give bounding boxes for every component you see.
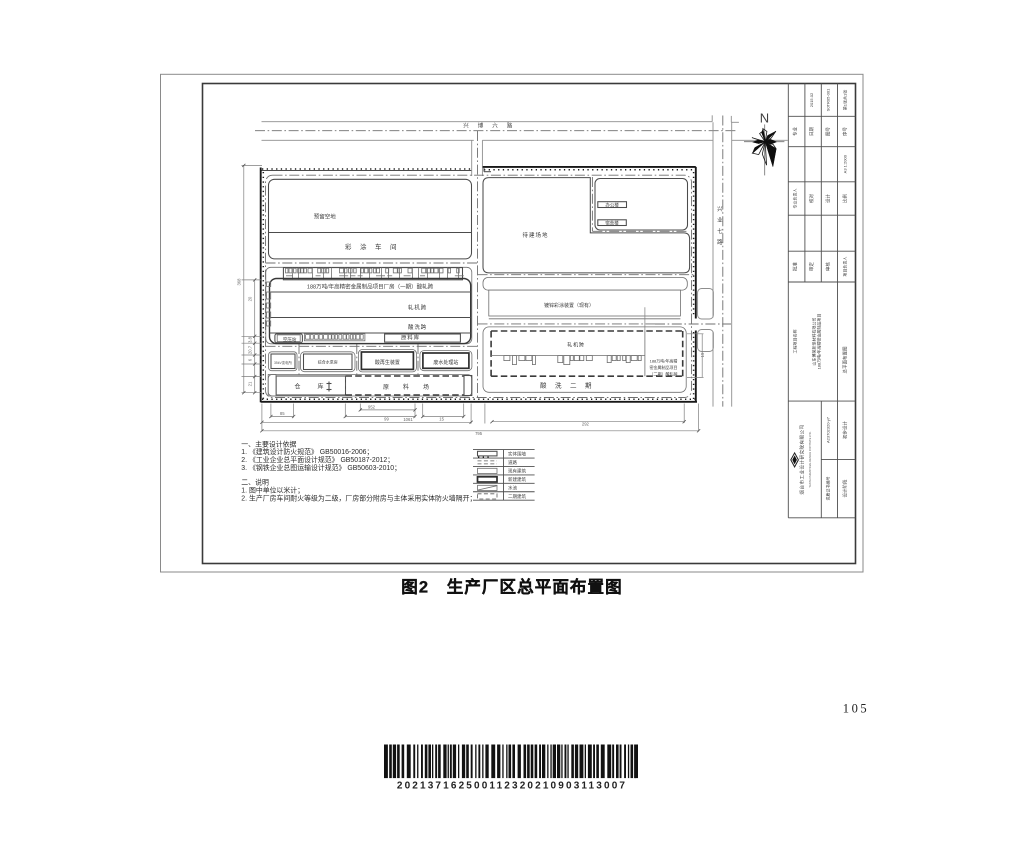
svg-text:业: 业 <box>717 216 723 224</box>
svg-text:废水处理站: 废水处理站 <box>433 359 458 366</box>
svg-text:99: 99 <box>384 417 389 422</box>
svg-text:山东博莱新型材料有限公司: 山东博莱新型材料有限公司 <box>810 318 816 366</box>
svg-text:188万吨/年高精密金属制品项目厂房（一期）酸轧跨: 188万吨/年高精密金属制品项目厂房（一期）酸轧跨 <box>307 282 434 290</box>
svg-text:YANTAI INDUSTRIAL DESIGN IN: YANTAI INDUSTRIAL DESIGN INSTITUTE LTD. <box>808 431 812 487</box>
svg-text:综合水泵房: 综合水泵房 <box>318 359 338 365</box>
svg-text:第1张共1张: 第1张共1张 <box>842 90 848 110</box>
svg-text:292: 292 <box>582 422 590 427</box>
svg-text:兴: 兴 <box>717 205 723 213</box>
svg-text:实体围墙: 实体围墙 <box>508 451 526 458</box>
svg-text:1. 图中单位以米计；: 1. 图中单位以米计； <box>241 486 304 495</box>
svg-text:密金属制品项目: 密金属制品项目 <box>650 364 678 370</box>
svg-text:N: N <box>760 111 769 126</box>
svg-text:1. 《建筑设计防火规范》 GB50016-2006；: 1. 《建筑设计防火规范》 GB50016-2006； <box>241 447 373 456</box>
svg-text:3. 《钢铁企业总图运输设计规范》 GB50603-2010: 3. 《钢铁企业总图运输设计规范》 GB50603-2010； <box>241 463 401 472</box>
svg-text:952: 952 <box>368 405 376 410</box>
svg-text:兴博六路: 兴博六路 <box>463 121 521 129</box>
svg-text:15: 15 <box>700 352 705 357</box>
svg-text:道路: 道路 <box>508 459 517 466</box>
svg-text:比例: 比例 <box>842 194 849 203</box>
svg-text:图2 生产厂区总平面布置图: 图2 生产厂区总平面布置图 <box>401 577 622 597</box>
svg-text:工程项目名称: 工程项目名称 <box>792 330 798 354</box>
svg-text:批准: 批准 <box>792 262 799 271</box>
svg-text:二、说明: 二、说明 <box>241 477 269 486</box>
svg-text:酸再生装置: 酸再生装置 <box>375 359 400 366</box>
svg-text:审核: 审核 <box>824 262 831 271</box>
svg-text:初步设计: 初步设计 <box>842 421 849 439</box>
svg-text:办公楼: 办公楼 <box>605 202 619 209</box>
svg-text:20.7: 20.7 <box>248 345 253 354</box>
svg-text:368: 368 <box>237 278 242 286</box>
svg-text:专业: 专业 <box>792 127 799 136</box>
svg-text:188万吨/年高精密金属制品项目: 188万吨/年高精密金属制品项目 <box>816 314 822 370</box>
svg-text:15: 15 <box>439 417 444 422</box>
svg-text:彩涂车间: 彩涂车间 <box>345 242 405 251</box>
svg-text:20: 20 <box>248 296 253 301</box>
svg-text:35kV变电所: 35kV变电所 <box>274 360 293 365</box>
svg-text:设计: 设计 <box>824 194 831 203</box>
svg-text:专业负责人: 专业负责人 <box>792 189 798 209</box>
svg-text:一、主要设计依据: 一、主要设计依据 <box>241 440 296 449</box>
svg-text:1061: 1061 <box>403 417 413 422</box>
svg-text:空压站: 空压站 <box>283 336 297 343</box>
svg-text:A3 1:2000: A3 1:2000 <box>843 154 848 173</box>
svg-text:审定: 审定 <box>808 262 815 271</box>
svg-text:路: 路 <box>717 238 723 246</box>
svg-text:轧机跨: 轧机跨 <box>567 341 584 348</box>
svg-text:酸洗跨: 酸洗跨 <box>408 323 427 331</box>
svg-text:2. 《工业企业总平面设计规范》 GB50187-2012；: 2. 《工业企业总平面设计规范》 GB50187-2012； <box>241 455 394 464</box>
svg-text:镀锌彩涂装置（现有）: 镀锌彩涂装置（现有） <box>544 302 594 309</box>
svg-text:资质证书编号: 资质证书编号 <box>824 477 830 501</box>
svg-text:现有建筑: 现有建筑 <box>508 467 526 474</box>
svg-text:校对: 校对 <box>808 194 815 203</box>
svg-text:3.8: 3.8 <box>248 336 253 342</box>
svg-text:待建场地: 待建场地 <box>522 231 548 239</box>
svg-text:S0TR05-001: S0TR05-001 <box>825 88 830 111</box>
svg-text:项目负责人: 项目负责人 <box>842 257 848 277</box>
svg-text:七: 七 <box>717 227 723 235</box>
svg-text:85: 85 <box>280 411 285 416</box>
svg-text:水池: 水池 <box>508 484 517 490</box>
svg-text:188万吨/年高精: 188万吨/年高精 <box>650 358 678 364</box>
svg-text:202137162500112320210903113007: 202137162500112320210903113007 <box>397 781 627 792</box>
svg-text:轧机跨: 轧机跨 <box>408 303 427 311</box>
svg-text:仓库: 仓库 <box>294 383 340 391</box>
svg-text:2. 生产厂房车间耐火等级为二级，厂房部分附房与主体采用实体: 2. 生产厂房车间耐火等级为二级，厂房部分附房与主体采用实体防火墙隔开； <box>241 494 476 503</box>
svg-text:烟台市工业设计研究院有限公司: 烟台市工业设计研究院有限公司 <box>799 425 806 495</box>
svg-text:105: 105 <box>843 702 870 716</box>
svg-text:（二期）酸轧跨: （二期）酸轧跨 <box>650 371 678 377</box>
svg-text:序号: 序号 <box>842 127 849 136</box>
svg-text:原料库: 原料库 <box>401 334 420 342</box>
svg-text:宿舍楼: 宿舍楼 <box>605 220 619 227</box>
svg-text:A23702320-y7: A23702320-y7 <box>825 416 830 443</box>
svg-text:二期建筑: 二期建筑 <box>508 493 526 500</box>
svg-text:原料场: 原料场 <box>383 383 443 391</box>
svg-text:2015.02: 2015.02 <box>809 92 814 107</box>
svg-text:795: 795 <box>475 431 483 436</box>
svg-text:21: 21 <box>248 381 253 386</box>
svg-text:总平面布置图: 总平面布置图 <box>842 346 849 373</box>
svg-text:预留空地: 预留空地 <box>314 212 337 220</box>
svg-text:设计阶段: 设计阶段 <box>842 479 849 497</box>
svg-text:酸洗二期: 酸洗二期 <box>540 380 600 389</box>
svg-text:新建建筑: 新建建筑 <box>508 476 526 483</box>
